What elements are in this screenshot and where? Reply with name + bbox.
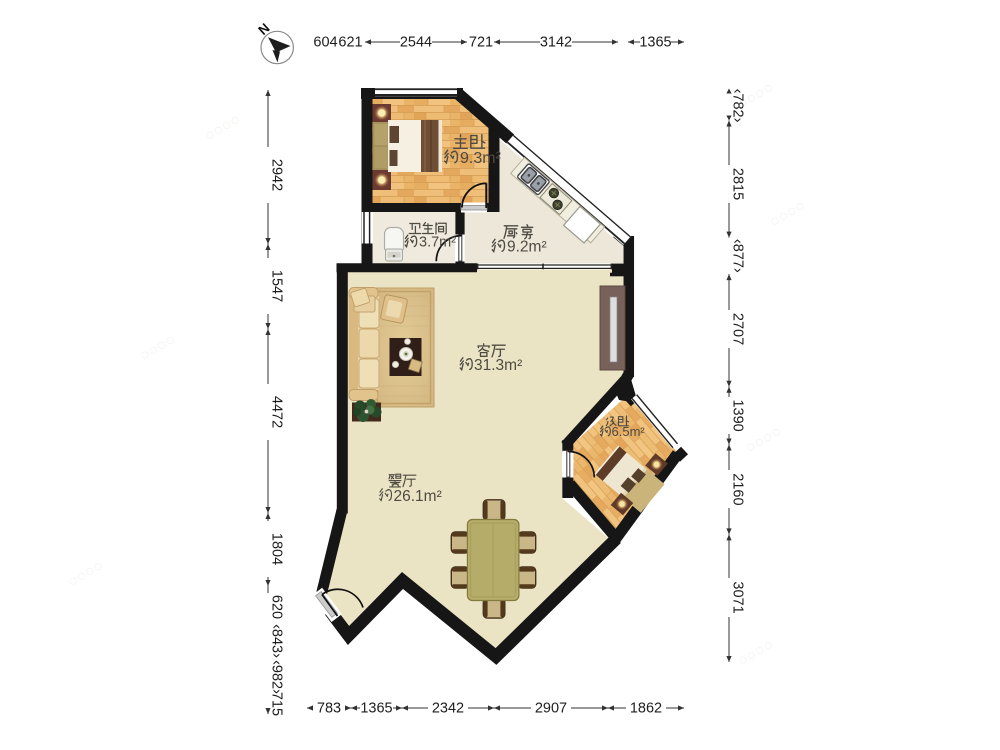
svg-text:‹843›: ‹843›	[269, 624, 285, 658]
svg-text:1804: 1804	[269, 533, 285, 565]
svg-text:604: 604	[313, 35, 337, 51]
svg-text:2942: 2942	[269, 159, 285, 191]
svg-text:9.3m²: 9.3m²	[460, 150, 502, 167]
svg-text:6.5m²: 6.5m²	[612, 424, 646, 439]
svg-text:721: 721	[469, 35, 493, 51]
svg-text:‹982›: ‹982›	[269, 660, 285, 694]
svg-text:2544: 2544	[400, 35, 432, 51]
svg-text:1547: 1547	[269, 270, 285, 302]
svg-text:620: 620	[269, 595, 285, 619]
svg-text:2160: 2160	[730, 473, 746, 505]
svg-text:3.7m²: 3.7m²	[419, 235, 456, 251]
svg-text:2707: 2707	[730, 313, 746, 345]
svg-text:2815: 2815	[730, 168, 746, 200]
svg-text:715: 715	[269, 692, 285, 716]
svg-text:621: 621	[338, 35, 362, 51]
svg-text:783: 783	[317, 701, 341, 717]
svg-text:4472: 4472	[269, 396, 285, 428]
svg-text:‹782›: ‹782›	[730, 89, 746, 123]
svg-text:9.2m²: 9.2m²	[507, 239, 547, 256]
svg-text:‹877›: ‹877›	[730, 239, 746, 273]
svg-text:1365: 1365	[639, 35, 671, 51]
svg-text:26.1m²: 26.1m²	[394, 488, 442, 505]
svg-text:2907: 2907	[535, 701, 567, 717]
svg-text:1365: 1365	[360, 701, 392, 717]
svg-text:3071: 3071	[730, 581, 746, 613]
svg-text:1390: 1390	[730, 399, 746, 431]
svg-text:3142: 3142	[540, 35, 572, 51]
svg-text:1862: 1862	[630, 701, 662, 717]
svg-text:2342: 2342	[432, 701, 464, 717]
svg-text:31.3m²: 31.3m²	[474, 357, 522, 374]
